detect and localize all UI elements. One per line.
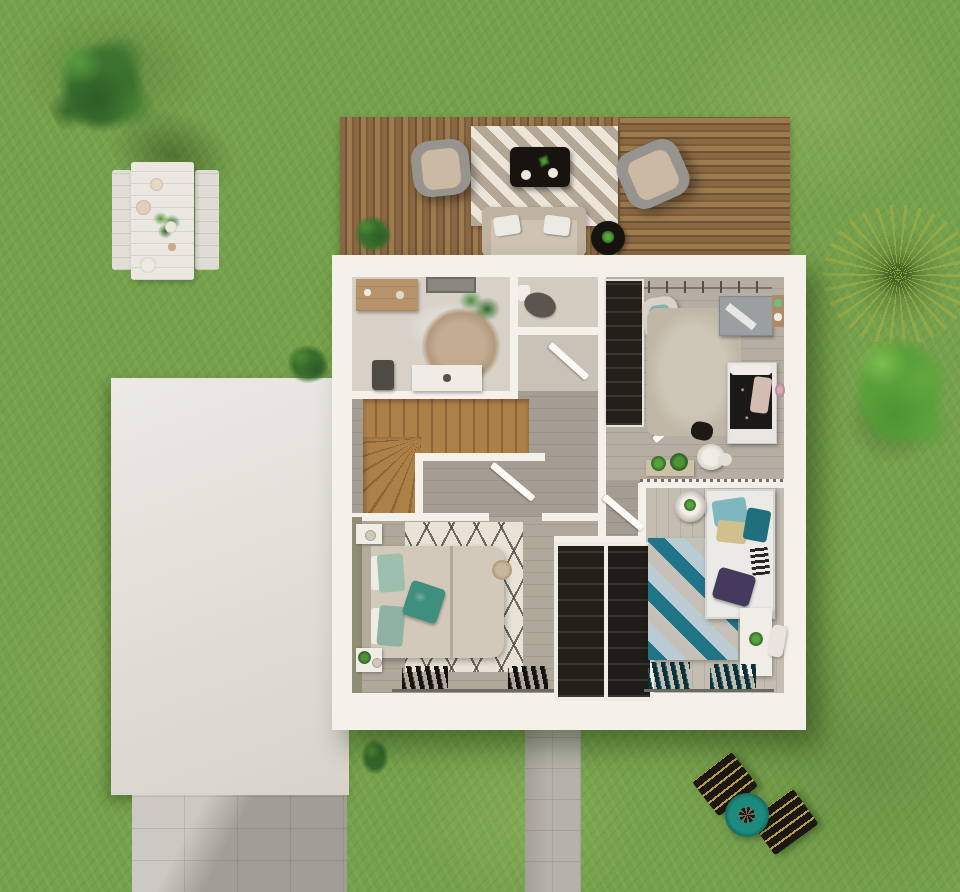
nightstand (356, 648, 382, 672)
armchair-cushion (420, 147, 462, 191)
nightstand-plant (358, 651, 371, 664)
shrub-near-path (357, 734, 393, 780)
side-table-plant (684, 499, 696, 511)
console-plant (651, 456, 666, 471)
wall-stair-right (415, 453, 545, 461)
sofa-pillow (493, 214, 522, 237)
plate-on-table (521, 170, 531, 180)
tree-right (840, 320, 960, 465)
shelf-item-green (774, 299, 782, 307)
plate (150, 178, 163, 191)
lamp (365, 530, 376, 541)
stool (372, 360, 394, 390)
closet-right (604, 542, 654, 701)
wc-hall-floor (518, 335, 600, 399)
accent-pillow (401, 579, 446, 624)
window-glass-track (644, 689, 774, 692)
wall-stair-vertical (415, 453, 423, 519)
wall-shelf (772, 295, 784, 327)
kid-pillow-dark-teal (742, 507, 771, 543)
laptop (725, 303, 757, 330)
armchair-cushion (625, 147, 682, 203)
round-side-table (674, 490, 706, 522)
bed-pillow (731, 431, 771, 440)
sofa-armrest (577, 207, 586, 256)
wall-bathroom-bottom (352, 391, 512, 399)
wooden-terrace (340, 117, 790, 256)
bed-pillow (731, 365, 771, 375)
wall-bathroom-wc (510, 277, 518, 399)
window-glass-track (392, 689, 558, 692)
plate (136, 200, 151, 215)
double-bed (362, 546, 504, 658)
house (332, 255, 806, 730)
nightstand (356, 524, 382, 544)
kid-pillow-striped (750, 546, 771, 576)
table-center-plant (739, 807, 755, 823)
wall-master-top-right (542, 513, 606, 521)
staircase-winder (363, 437, 421, 521)
floor-plan-scene (0, 0, 960, 892)
bedroom1-desk (719, 296, 773, 336)
roof-shading (111, 378, 349, 795)
sofa-pillow (543, 214, 571, 236)
lamp (372, 658, 382, 668)
single-bed (705, 489, 775, 619)
window-shutters (710, 664, 756, 690)
wall-stair-bottom (352, 513, 423, 521)
plate-on-table (548, 168, 558, 178)
round-teal-table (725, 793, 769, 837)
teal-pillow (377, 553, 406, 593)
wall-master-top-left (423, 513, 489, 521)
tree-top-left (46, 28, 158, 146)
window-shutters (648, 662, 690, 690)
path-tiles (525, 730, 581, 892)
duvet-fold (450, 546, 453, 658)
console-plant (670, 453, 688, 471)
sideboard-item (396, 291, 404, 299)
armchair-left (409, 137, 473, 199)
window-shutters (508, 666, 548, 690)
sheep-pouf-head (718, 453, 732, 466)
garage-flat-roof (111, 378, 349, 795)
kid-pillow-purple (711, 566, 756, 607)
plant-console (646, 460, 694, 476)
trim-bedroom1-bottom (640, 479, 786, 488)
teal-pillow (376, 605, 405, 647)
wood-sideboard (356, 279, 418, 311)
jute-pouf (492, 560, 512, 580)
sink (443, 374, 451, 382)
driveway-tiles (132, 795, 347, 892)
headboard (362, 546, 371, 658)
garden-path (525, 730, 581, 892)
window-shutters (402, 666, 448, 690)
wall-wc-bottom (510, 327, 600, 335)
sideboard-item (364, 289, 371, 296)
picnic-bench-left (112, 170, 132, 270)
dark-wardrobe (604, 279, 644, 427)
driveway (132, 795, 347, 892)
plate (140, 257, 156, 273)
side-table (591, 221, 625, 255)
sofa (482, 207, 586, 256)
shelf-item-white (774, 313, 782, 321)
closet-left (554, 542, 610, 701)
plate (165, 221, 177, 233)
sofa-armrest (482, 207, 491, 256)
cup (168, 243, 176, 251)
vanity-with-sink (412, 365, 482, 391)
picnic-bench-right (195, 170, 219, 270)
shrub-house-corner (281, 339, 335, 389)
desk-plant (749, 632, 763, 646)
deck-shrub (349, 210, 397, 258)
black-bed (727, 362, 777, 444)
side-table-plant (599, 228, 617, 246)
rail-hangers (648, 281, 768, 293)
flower-vase (775, 383, 785, 397)
